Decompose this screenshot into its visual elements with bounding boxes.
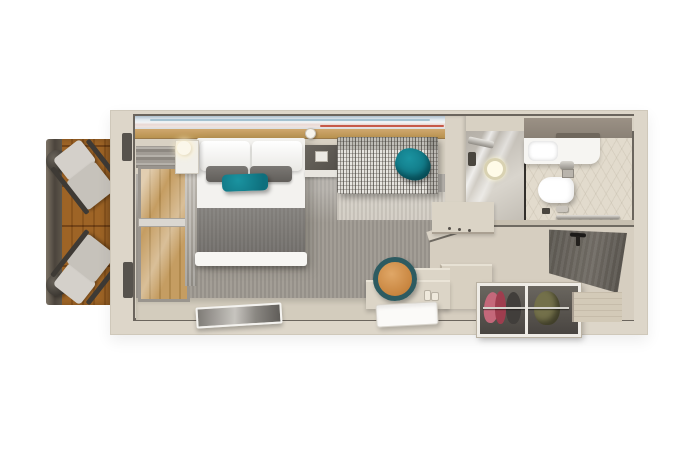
shower-control <box>468 152 476 166</box>
round-vanity-mirror <box>373 257 417 301</box>
pendant-lamp <box>305 128 316 139</box>
cabinet-knob <box>448 227 451 230</box>
balcony-door-divider <box>138 218 186 227</box>
wardrobe <box>477 283 581 337</box>
bed-foot-runner <box>195 252 307 266</box>
door-handle-stem <box>576 236 580 246</box>
bed-gray-blanket <box>197 208 305 256</box>
perfume-bottle <box>424 290 431 301</box>
towel-rail <box>556 215 620 219</box>
bedside-shelf <box>305 170 337 177</box>
carpet-light-strip <box>337 192 445 220</box>
toilet <box>538 177 574 203</box>
sofa-backrest <box>337 137 438 149</box>
cabinet-knob <box>458 228 461 231</box>
teal-bed-pillow <box>222 173 269 192</box>
wall-inner-line-left <box>133 116 135 320</box>
cabinet-knob <box>468 229 471 232</box>
bedside-tray <box>315 151 328 162</box>
shower-head <box>484 158 506 180</box>
perfume-bottle <box>431 292 439 301</box>
sink-bowl <box>528 141 558 161</box>
toilet-paper-holder <box>556 206 568 212</box>
balcony-glass-door <box>138 166 190 302</box>
wall-trim <box>122 133 132 161</box>
stateroom-floorplan-render <box>0 0 695 463</box>
wall-art-red-streak <box>320 125 444 127</box>
curtain <box>185 168 197 286</box>
floor-drain <box>542 208 550 214</box>
low-cabinet <box>432 202 494 234</box>
flush-plate <box>562 169 574 178</box>
wardrobe-divider <box>525 286 528 334</box>
door-threshold <box>572 292 622 322</box>
wall-art-blue-streak <box>150 119 430 121</box>
wall-trim <box>123 262 133 298</box>
nightstand-lamp <box>177 141 191 155</box>
white-tray <box>375 301 438 327</box>
